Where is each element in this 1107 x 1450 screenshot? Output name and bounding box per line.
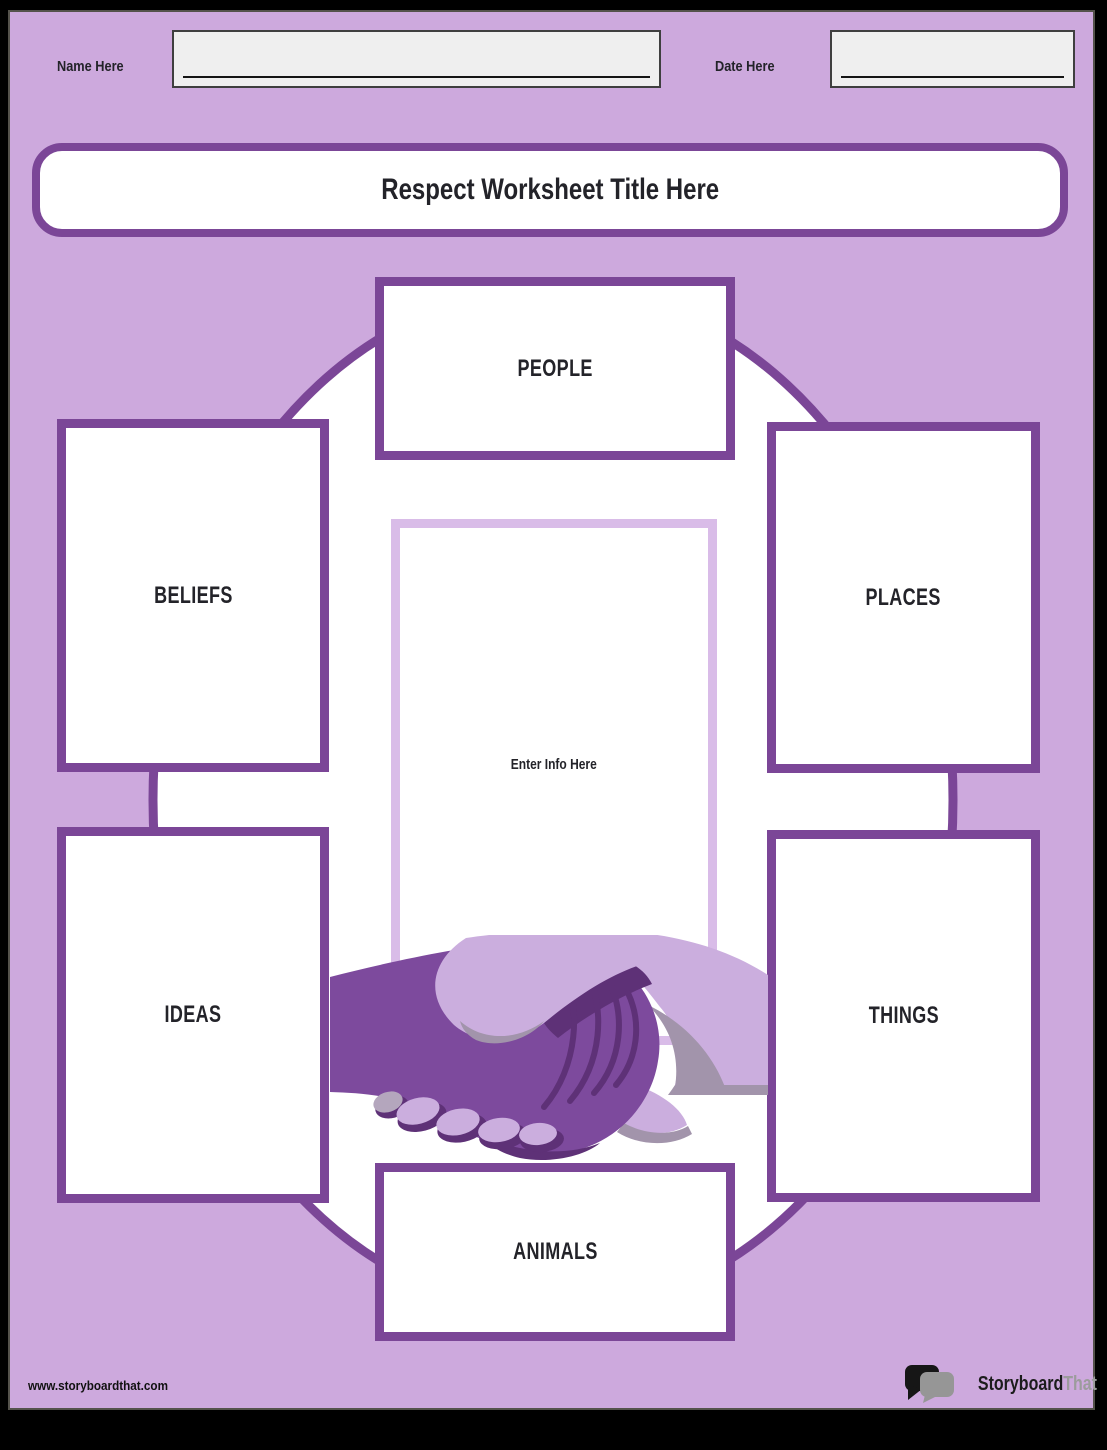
logo-text-primary: Storyboard: [978, 1373, 1063, 1395]
category-label-people: PEOPLE: [517, 355, 592, 383]
date-label: Date Here: [715, 58, 785, 75]
worksheet-page: Name Here Date Here Respect Worksheet Ti…: [0, 0, 1107, 1450]
date-input[interactable]: [830, 30, 1075, 88]
logo-text-secondary: That: [1063, 1373, 1097, 1395]
worksheet-title-banner[interactable]: Respect Worksheet Title Here: [32, 143, 1068, 237]
category-box-places[interactable]: PLACES: [767, 422, 1040, 773]
date-input-writing-line: [841, 76, 1064, 78]
speech-bubbles-icon: [905, 1365, 957, 1403]
logo-text: StoryboardThat: [978, 1373, 1097, 1396]
date-label-text: Date Here: [715, 58, 775, 75]
website-url: www.storyboardthat.com: [28, 1378, 184, 1393]
handshake-icon: [330, 935, 770, 1165]
name-label-text: Name Here: [57, 58, 124, 75]
category-box-animals[interactable]: ANIMALS: [375, 1163, 735, 1341]
category-label-places: PLACES: [866, 584, 941, 612]
category-box-beliefs[interactable]: BELIEFS: [57, 419, 329, 772]
category-label-ideas: IDEAS: [165, 1001, 222, 1029]
category-label-beliefs: BELIEFS: [154, 582, 233, 610]
storyboardthat-logo: StoryboardThat: [905, 1364, 1107, 1404]
category-box-ideas[interactable]: IDEAS: [57, 827, 329, 1203]
name-label: Name Here: [57, 58, 135, 75]
category-box-things[interactable]: THINGS: [767, 830, 1040, 1202]
category-box-people[interactable]: PEOPLE: [375, 277, 735, 460]
name-input-writing-line: [183, 76, 650, 78]
name-input[interactable]: [172, 30, 661, 88]
category-label-things: THINGS: [868, 1002, 938, 1030]
category-label-animals: ANIMALS: [513, 1238, 598, 1266]
worksheet-title: Respect Worksheet Title Here: [381, 173, 719, 207]
center-info-placeholder: Enter Info Here: [400, 756, 708, 773]
